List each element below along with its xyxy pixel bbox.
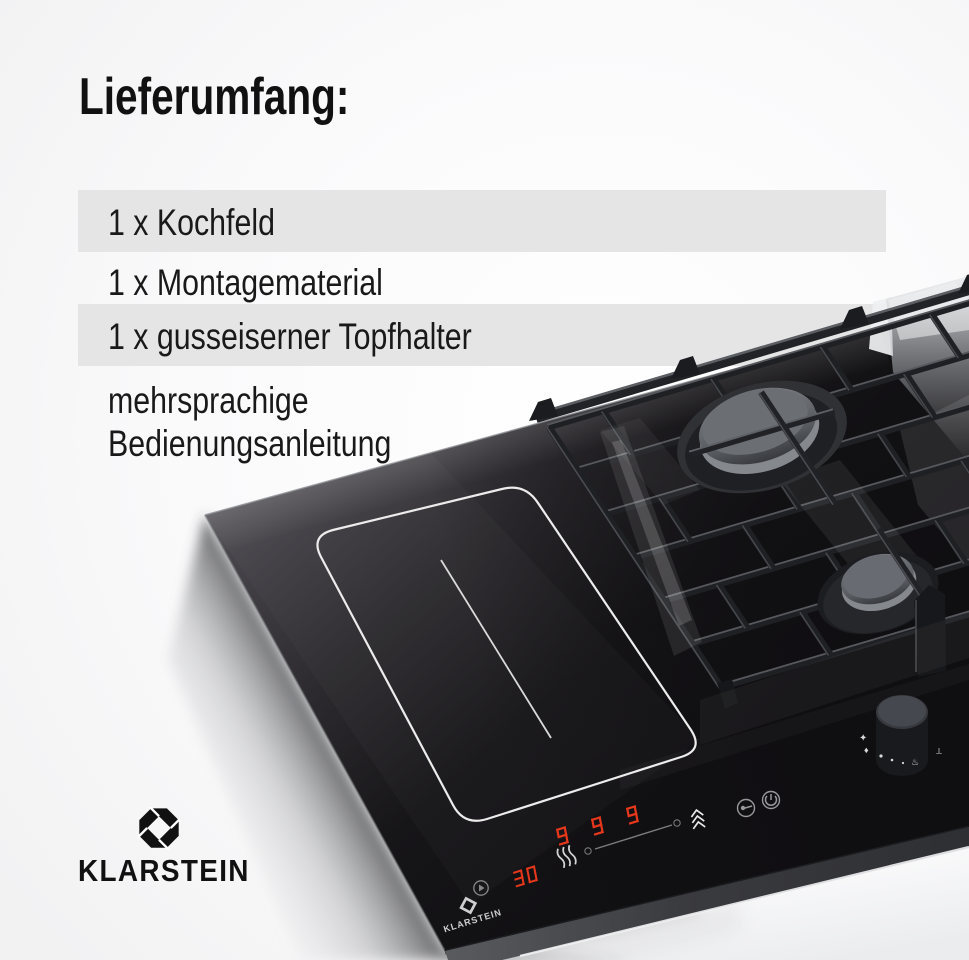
svg-text:✦: ✦: [859, 733, 867, 744]
svg-text:⟂: ⟂: [936, 746, 942, 756]
svg-text:♨: ♨: [911, 757, 919, 767]
svg-text:♦: ♦: [864, 745, 869, 755]
